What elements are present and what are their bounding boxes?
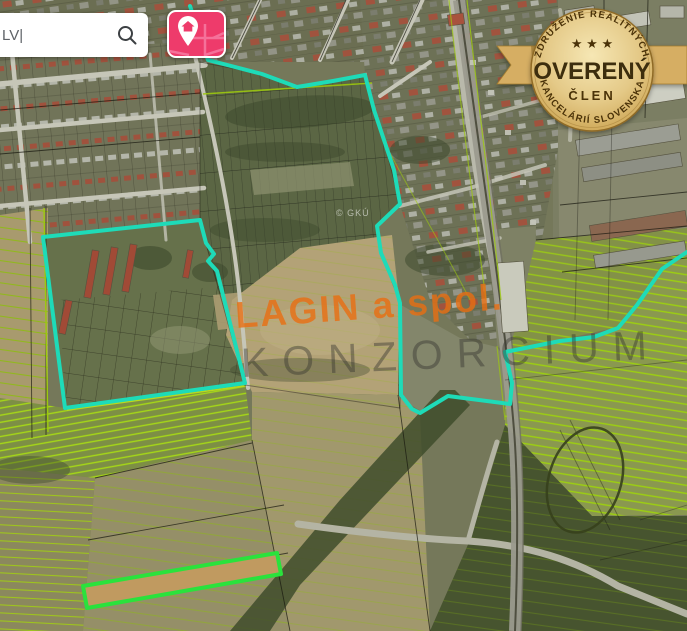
map-canvas[interactable]: © GKÚ LAGIN a spol. KONZORCIUM xyxy=(0,0,687,631)
map-pin-house-icon xyxy=(178,16,198,46)
map-copyright: © GKÚ xyxy=(336,208,370,218)
search-box[interactable] xyxy=(0,13,148,57)
search-input[interactable] xyxy=(0,27,110,44)
brand-logo[interactable] xyxy=(167,10,226,58)
search-button[interactable] xyxy=(110,18,144,52)
search-icon xyxy=(116,24,138,46)
